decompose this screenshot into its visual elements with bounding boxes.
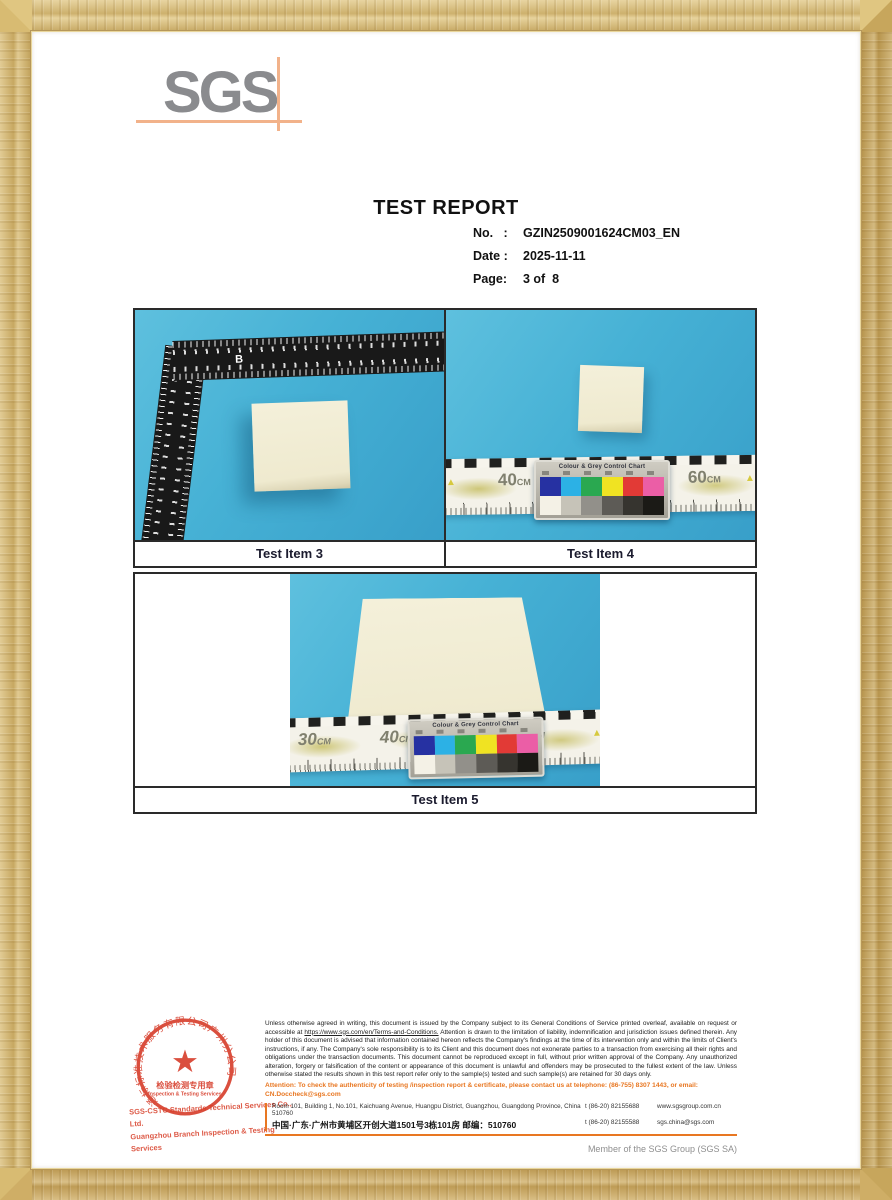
chart-color-swatch [643,496,664,515]
ceramic-tile-sample [251,400,350,491]
meta-row-page: Page: 3 of 8 [473,272,680,286]
report-page: SGS TEST REPORT No. : GZIN2509001624CM03… [30,30,862,1170]
sgs-membership-note: Member of the SGS Group (SGS SA) [265,1144,737,1154]
ruler-label-30: 30 [298,730,317,750]
chart-color-swatch [602,477,623,496]
ruler-triangle-marker: ▲ [446,478,456,488]
footer-divider [265,1134,737,1136]
logo-crosshair-vertical [277,57,280,131]
ruler-label-60: 60 [688,468,707,487]
chart-color-swatch [496,734,517,753]
ruler-triangle-marker: ▲ [592,729,600,739]
meta-label-no: No. : [473,226,523,240]
frame-grain-top [32,0,860,30]
chart-column-labels [542,471,662,475]
email-address: sgs.china@sgs.com [657,1119,737,1126]
chart-color-swatch [623,477,644,496]
photo-table-top: B ▲ 40CM 60CM ▲ [133,308,757,568]
report-number: GZIN2509001624CM03_EN [523,226,680,240]
frame-grain-right [862,32,892,1168]
report-date: 2025-11-11 [523,249,586,263]
phone-number: t (86-20) 82155588 [585,1119,657,1126]
colour-grey-control-chart: Colour & Grey Control Chart [534,460,670,520]
chart-color-swatch [455,754,476,773]
meta-row-date: Date : 2025-11-11 [473,249,680,263]
page-title: TEST REPORT [30,197,862,220]
framing-square-horizontal-arm: B [172,331,446,381]
footer: Unless otherwise agreed in writing, this… [265,1020,737,1154]
address-row-cn: 中国·广东·广州市黄埔区开创大道1501号3栋101房 邮编：510760 t … [272,1119,737,1131]
ruler-brand-mark: B [235,354,243,366]
chart-grey-row [540,496,664,515]
chart-color-swatch [455,735,476,754]
stamp-center-text-en: Inspection & Testing Services [148,1092,222,1098]
meta-label-date: Date : [473,249,523,263]
sgs-logo: SGS [163,64,277,122]
chart-color-swatch [476,754,497,773]
caption-test-item-4: Test Item 4 [446,542,755,566]
photo-test-item-5: 30CM 40CM 60CM ▲ Colour & Grey Control C… [290,574,600,786]
meta-row-no: No. : GZIN2509001624CM03_EN [473,226,680,240]
chart-color-swatch [476,735,497,754]
chart-grey-row [414,753,538,775]
caption-test-item-5: Test Item 5 [135,788,755,812]
chart-color-swatch [434,735,455,754]
address-row-en: Room 101, Building 1, No.101, Kaichuang … [272,1103,737,1117]
chart-color-swatch [581,477,602,496]
phone-number: t (86-20) 82155688 [585,1103,657,1110]
photo-table-bottom: 30CM 40CM 60CM ▲ Colour & Grey Control C… [133,572,757,814]
page-number: 3 of 8 [523,272,559,286]
frame-grain-left [0,32,30,1168]
chart-color-swatch [517,734,538,753]
ruler-unit: CM [317,736,331,746]
report-meta: No. : GZIN2509001624CM03_EN Date : 2025-… [473,226,680,295]
chart-color-swatch [561,496,582,515]
chart-color-row [414,734,538,756]
wooden-picture-frame: SGS TEST REPORT No. : GZIN2509001624CM03… [0,0,892,1200]
chart-color-swatch [540,477,561,496]
legal-disclaimer: Unless otherwise agreed in writing, this… [265,1020,737,1080]
chart-color-swatch [540,496,561,515]
stamp-center-text-cn: 检验检测专用章 [156,1080,214,1090]
address-block: Room 101, Building 1, No.101, Kaichuang … [265,1103,737,1131]
chart-color-swatch [561,477,582,496]
address-english: Room 101, Building 1, No.101, Kaichuang … [272,1103,585,1117]
website-url: www.sgsgroup.com.cn [657,1103,737,1110]
ceramic-tile-sample [578,365,644,433]
terms-link: https://www.sgs.com/en/Terms-and-Conditi… [304,1029,438,1036]
ruler-unit: CM [517,477,531,487]
chart-color-swatch [643,477,664,496]
frame-grain-bottom [32,1170,860,1200]
ruler-label-40: 40 [380,727,399,747]
caption-test-item-3: Test Item 3 [135,542,446,566]
disclaimer-text-cont: Attention is drawn to the limitation of … [265,1029,737,1079]
chart-color-swatch [623,496,644,515]
chart-color-swatch [497,753,518,772]
photo-test-item-3: B [135,310,446,540]
colour-grey-control-chart: Colour & Grey Control Chart [407,717,544,780]
stamp-star-icon: ★ [171,1044,199,1079]
ruler-triangle-marker: ▲ [745,474,755,484]
chart-color-swatch [517,753,538,772]
meta-label-page: Page: [473,272,523,286]
ruler-unit: CM [707,474,721,484]
chart-title: Colour & Grey Control Chart [540,464,664,470]
attention-notice: Attention: To check the authenticity of … [265,1082,737,1100]
chart-color-swatch [414,736,435,755]
photo-test-item-4: ▲ 40CM 60CM ▲ Colour & Grey Control Char… [446,310,755,540]
chart-color-swatch [435,754,456,773]
chart-color-swatch [581,496,602,515]
chart-color-swatch [414,755,435,774]
chart-color-row [540,477,664,496]
chart-color-swatch [602,496,623,515]
ruler-label-40: 40 [498,470,517,489]
address-chinese: 中国·广东·广州市黄埔区开创大道1501号3栋101房 邮编：510760 [272,1119,585,1131]
